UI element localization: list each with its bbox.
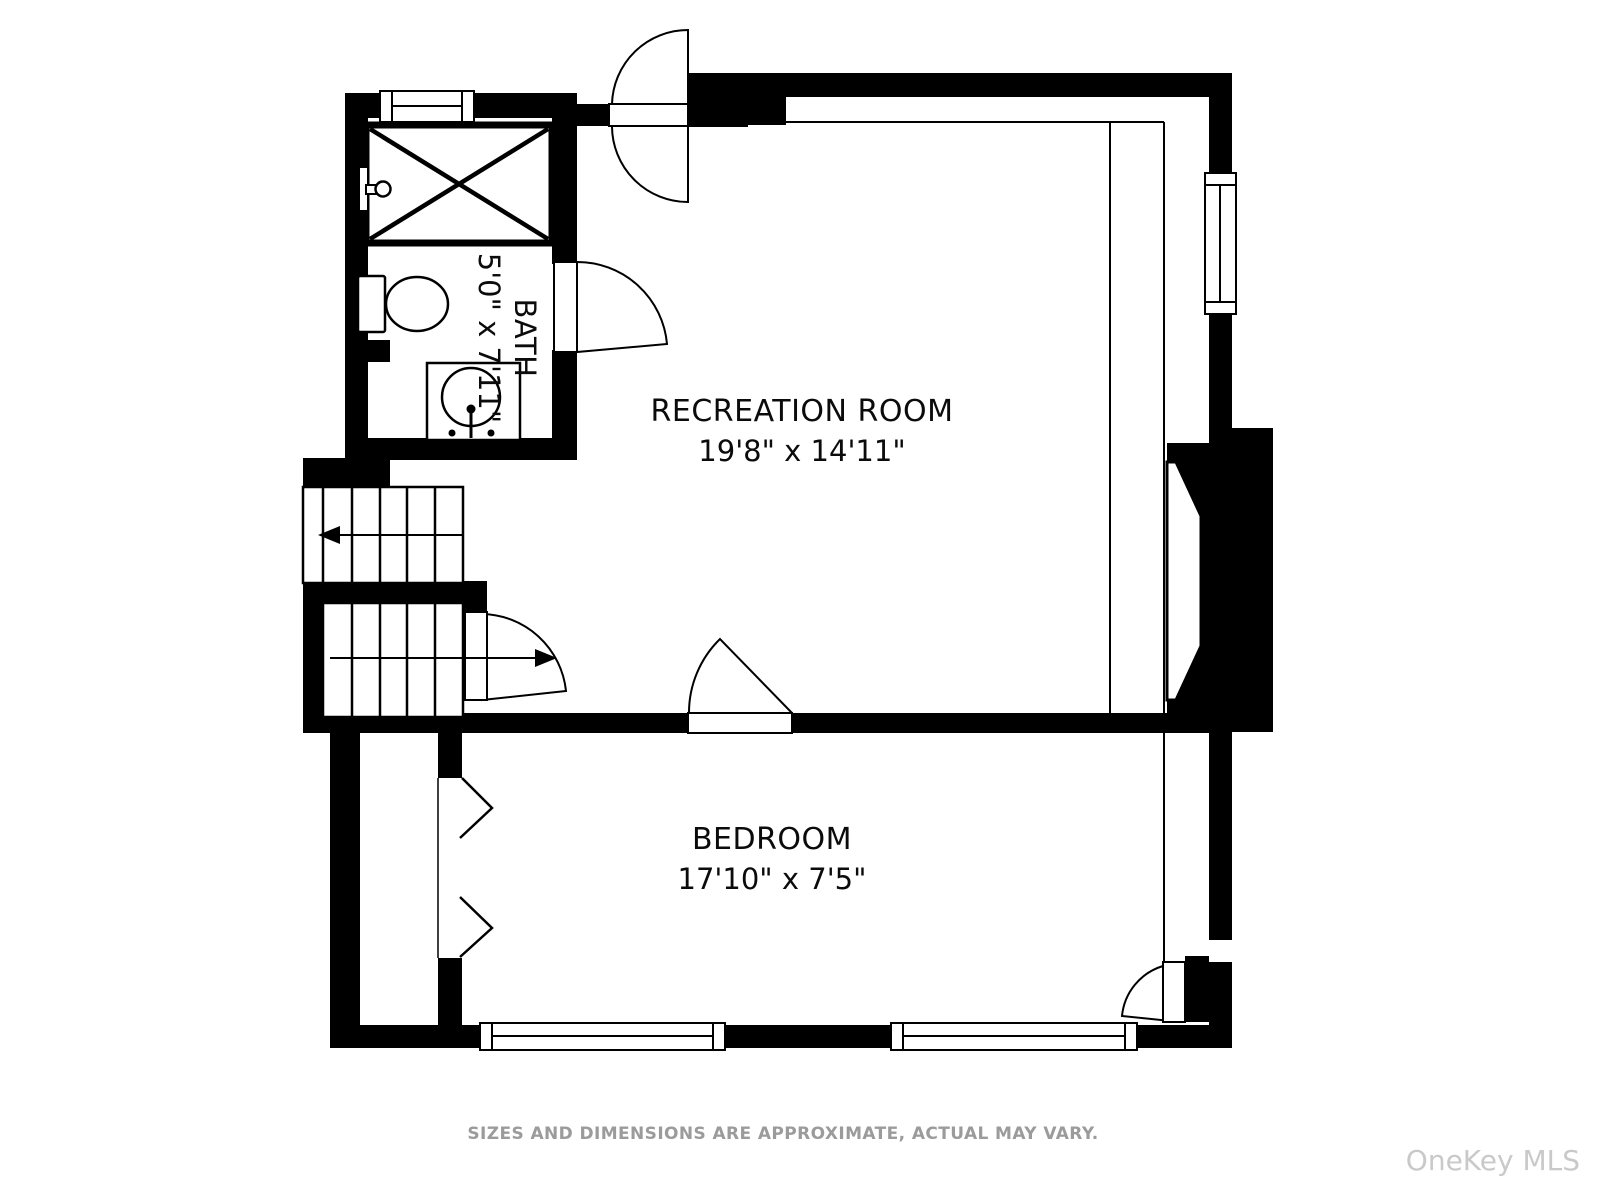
stairs-upper-flight-icon xyxy=(303,487,463,583)
window-bedroom-2-icon xyxy=(891,1023,1137,1050)
wall-entry-block xyxy=(688,73,748,127)
bifold-door-icon xyxy=(460,897,492,957)
wall-right-upper xyxy=(1209,73,1232,178)
wall-bath-bottom xyxy=(345,438,577,460)
wall-top xyxy=(748,73,1232,97)
disclaimer-text: SIZES AND DIMENSIONS ARE APPROXIMATE, AC… xyxy=(433,1124,1133,1144)
floorplan-canvas: RECREATION ROOM 19'8" x 14'11" BEDROOM 1… xyxy=(0,0,1600,1200)
floorplan-drawing xyxy=(0,0,1600,1200)
bedroom-label: BEDROOM 17'10" x 7'5" xyxy=(532,822,1012,896)
watermark-text: OneKey MLS xyxy=(1380,1144,1580,1177)
toilet-icon xyxy=(358,276,448,332)
wall-mid-stub xyxy=(303,458,390,486)
window-right-icon xyxy=(1205,173,1236,314)
recreation-room-label: RECREATION ROOM 19'8" x 14'11" xyxy=(562,394,1042,468)
room-dimensions: 19'8" x 14'11" xyxy=(562,434,1042,468)
wall-bedroom-bottom-1 xyxy=(330,1025,480,1048)
bath-label: BATH 5'0" x 7'11" xyxy=(466,220,542,456)
room-name: RECREATION ROOM xyxy=(562,394,1042,429)
wall-bedroom-right-upper xyxy=(1209,732,1232,940)
closet-bifold-doors-icon xyxy=(460,778,492,957)
wall-bath-right-upper xyxy=(552,118,577,264)
wall-bath-stub xyxy=(345,340,390,362)
bath-door-icon xyxy=(554,262,667,352)
chimney-top xyxy=(1209,428,1273,443)
wall-bedroom-left xyxy=(330,733,360,1048)
wall-bedroom-right-lower xyxy=(1209,962,1232,1048)
wall-closet-stub-top xyxy=(438,733,462,778)
room-dimensions: 5'0" x 7'11" xyxy=(472,220,506,456)
room-name: BEDROOM xyxy=(532,822,1012,857)
wall-closet-stub-bottom xyxy=(438,958,462,1028)
window-bath-top-icon xyxy=(380,91,474,122)
wall-stairs-left xyxy=(303,581,325,733)
entry-double-swing-door-icon xyxy=(609,30,688,202)
recroom-bottom-door-icon xyxy=(688,639,792,733)
wall-top-segment xyxy=(577,104,609,126)
bifold-door-icon xyxy=(460,778,492,838)
bedroom-door-icon xyxy=(1122,962,1185,1022)
wall-right-mid xyxy=(1209,310,1232,443)
room-dimensions: 17'10" x 7'5" xyxy=(532,862,1012,896)
wall-bedroom-bottom-2 xyxy=(725,1025,893,1048)
wall-stair-mid xyxy=(303,581,487,603)
wall-recroom-bottom-right xyxy=(792,713,1232,733)
window-bedroom-1-icon xyxy=(480,1023,725,1050)
wall-top-step xyxy=(748,97,786,125)
wall-bedroom-door-block xyxy=(1185,956,1209,1022)
room-name: BATH xyxy=(508,220,542,456)
